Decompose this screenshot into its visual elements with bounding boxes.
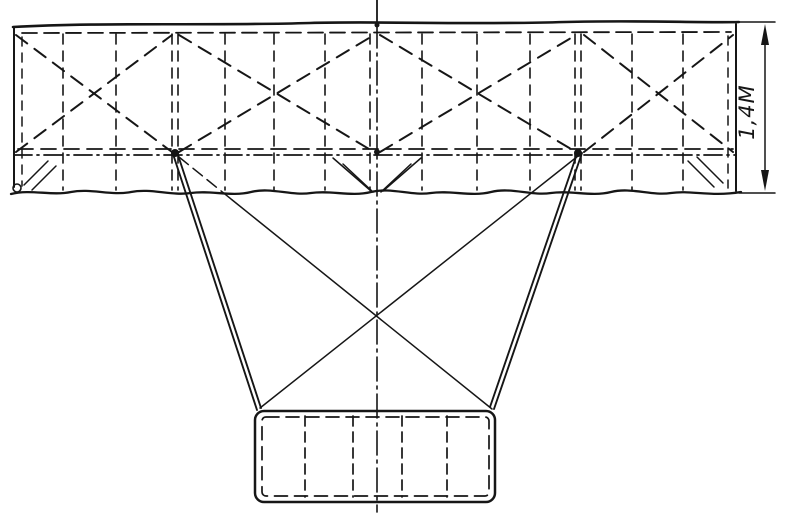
wing-inner-dashed-frame <box>18 32 733 188</box>
arrowhead-up-icon <box>761 24 769 45</box>
left-strut-inner <box>177 152 261 408</box>
arrowhead-down-icon <box>761 170 769 191</box>
trailing-strip-ticks <box>24 157 723 192</box>
wing-x-bracing <box>16 35 733 152</box>
trailing-edge <box>11 190 741 194</box>
bottom-panel <box>255 411 495 502</box>
right-strut-inner <box>490 151 578 407</box>
bottom-panel-outline <box>255 411 495 502</box>
dimension-annotation: 1,4M <box>735 22 775 193</box>
bottom-panel-inner-dashed <box>262 417 489 496</box>
drawing-sheet: 1,4M <box>0 0 787 517</box>
wing-ribs <box>63 34 683 190</box>
dimension-label: 1,4M <box>735 84 759 140</box>
corner-loop <box>13 184 21 192</box>
drawing-canvas: 1,4M <box>0 0 787 517</box>
